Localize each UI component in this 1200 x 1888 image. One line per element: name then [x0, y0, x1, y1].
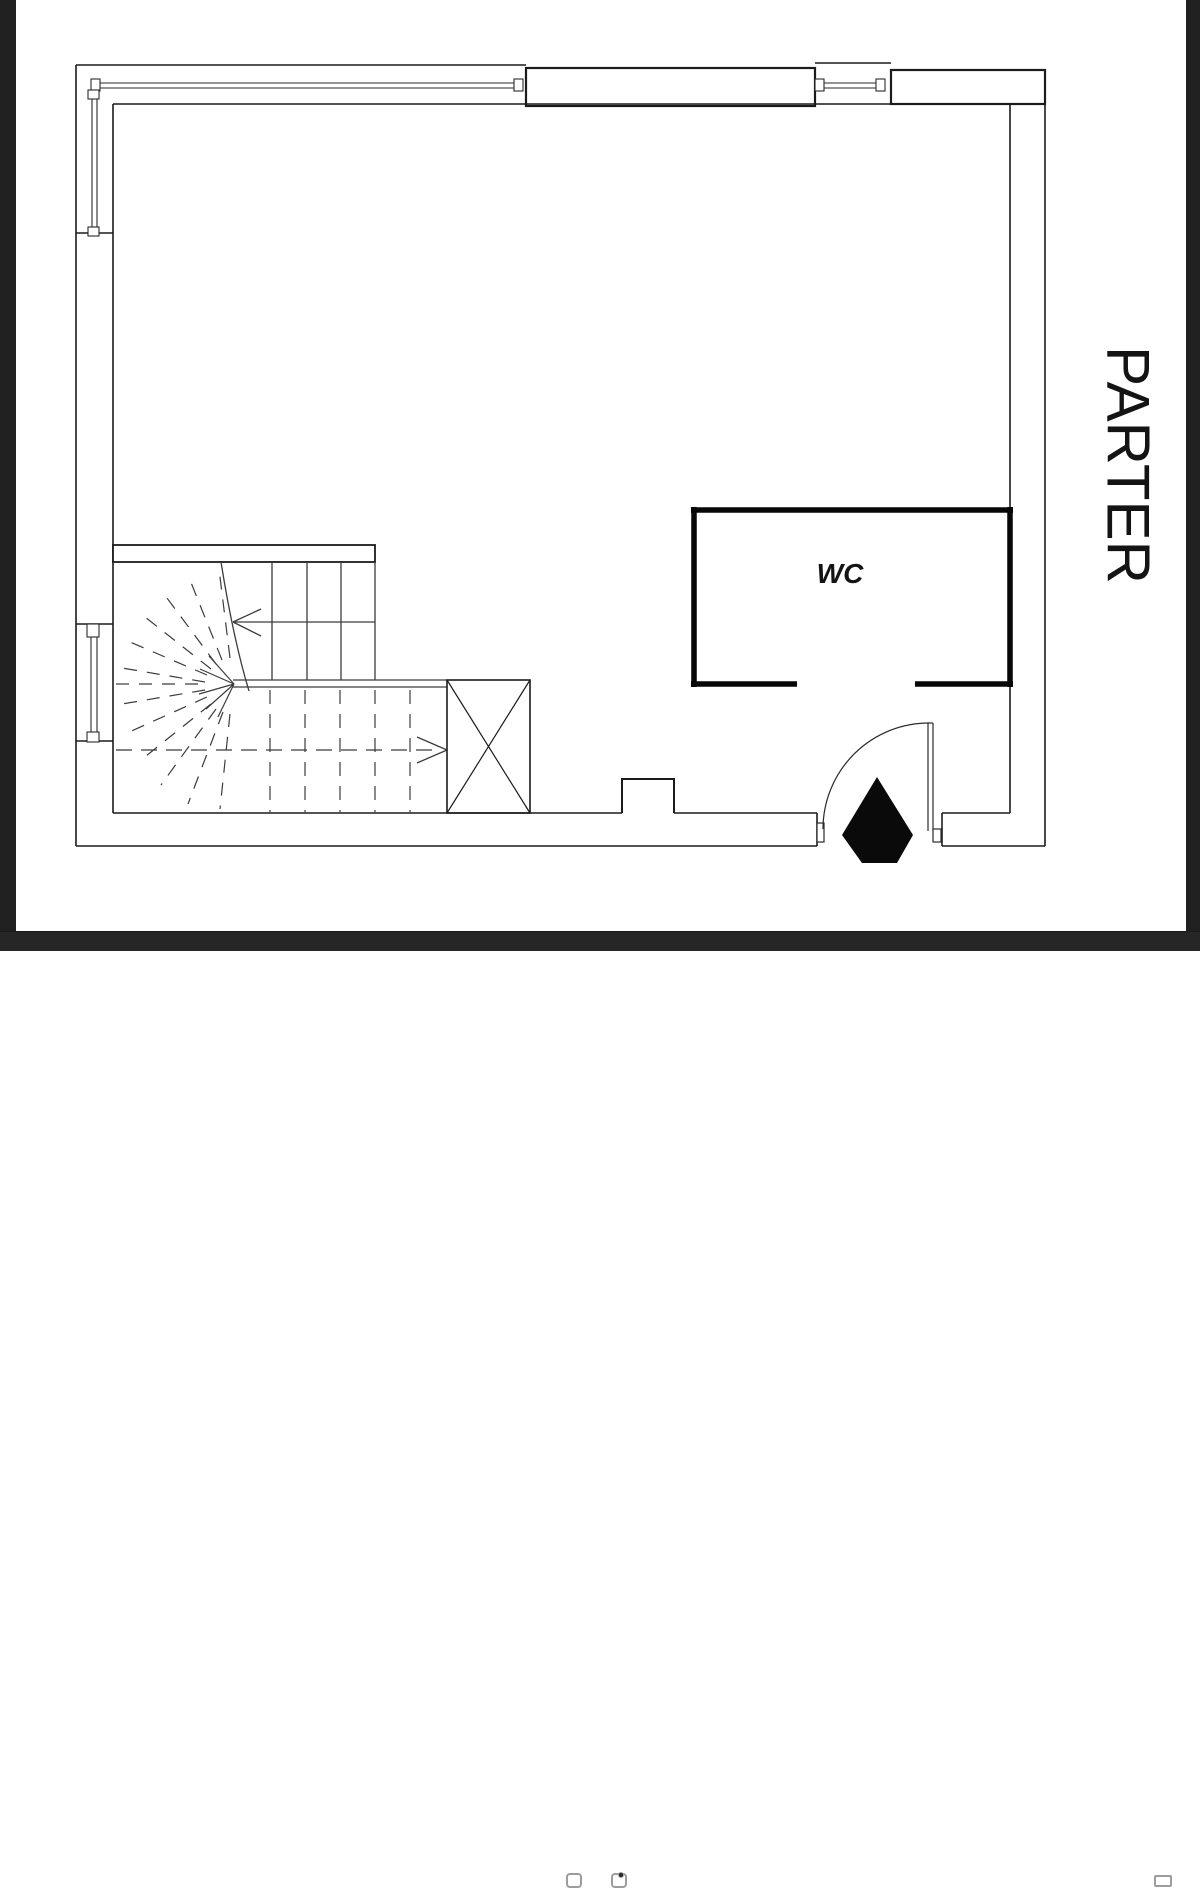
exterior-walls — [76, 63, 1045, 846]
window-top — [91, 79, 523, 91]
lower-flight-treads — [270, 690, 410, 812]
stair-walkline-up — [233, 609, 375, 636]
image-frame-icon[interactable] — [1154, 1875, 1172, 1887]
plan-title: PARTER — [1095, 346, 1162, 584]
right-edge-strip — [1186, 0, 1200, 950]
left-edge-strip — [0, 0, 16, 950]
camera-icon[interactable] — [611, 1873, 627, 1888]
entrance-marker — [842, 777, 913, 863]
window-left-upper — [88, 90, 99, 236]
bottom-toolbar — [0, 931, 1200, 951]
camera-lens-dot — [618, 1872, 624, 1878]
window-top-right — [815, 79, 885, 91]
staircase — [113, 545, 530, 813]
door-jamb-right — [933, 829, 941, 842]
stair-wall-band — [113, 545, 375, 562]
floor-plan-viewer: WC PARTER — [0, 0, 1200, 950]
rounded-square-icon[interactable] — [566, 1873, 582, 1888]
floor-plan-drawing: WC PARTER — [0, 0, 1200, 950]
entrance-door — [817, 723, 941, 863]
wc-room — [691, 507, 1013, 687]
winder-treads — [116, 569, 230, 809]
wc-room-label: WC — [817, 558, 864, 589]
window-left-lower — [87, 624, 99, 742]
stair-shaft-box — [447, 680, 530, 813]
